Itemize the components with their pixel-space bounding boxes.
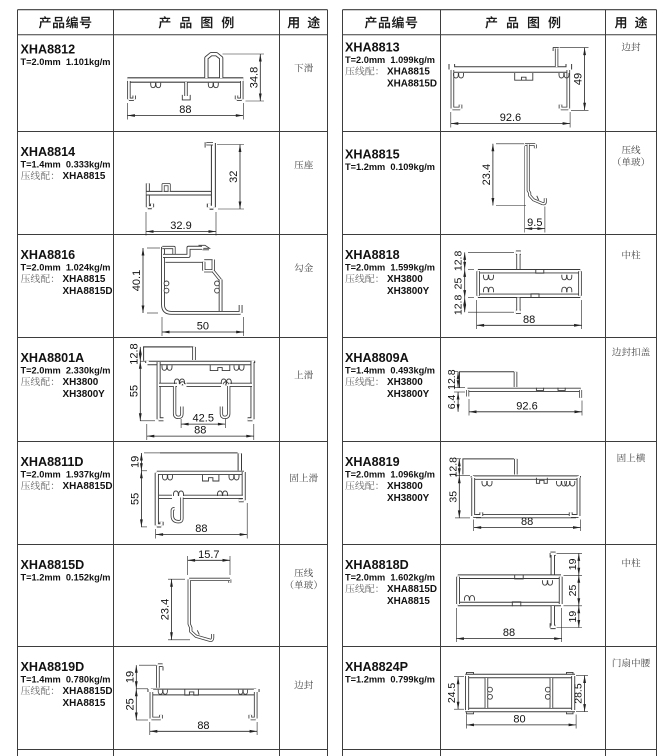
svg-text:T=2.0mm 1.024kg/m: T=2.0mm 1.024kg/m <box>21 263 111 274</box>
svg-text:23.4: 23.4 <box>481 164 493 185</box>
svg-text:XHA8813: XHA8813 <box>345 41 400 55</box>
svg-text:T=2.0mm 1.096kg/m: T=2.0mm 1.096kg/m <box>345 470 435 481</box>
svg-text:XH3800: XH3800 <box>63 377 99 388</box>
svg-text:XH3800Y: XH3800Y <box>387 286 430 297</box>
svg-text:88: 88 <box>523 314 535 326</box>
svg-text:35: 35 <box>447 491 459 503</box>
svg-text:XH3800Y: XH3800Y <box>387 493 430 504</box>
svg-text:88: 88 <box>197 720 209 732</box>
svg-text:XHA8815: XHA8815 <box>387 596 430 607</box>
svg-text:XHA8812: XHA8812 <box>21 42 76 56</box>
svg-text:28.5: 28.5 <box>573 683 585 704</box>
svg-text:32: 32 <box>228 171 240 183</box>
svg-text:40.1: 40.1 <box>131 270 143 291</box>
svg-text:88: 88 <box>179 104 191 116</box>
svg-text:XH3800: XH3800 <box>387 274 423 285</box>
svg-text:XHA8816: XHA8816 <box>21 248 76 262</box>
svg-text:XHA8815: XHA8815 <box>345 148 400 162</box>
svg-text:34.8: 34.8 <box>248 67 260 88</box>
svg-text:XHA8815: XHA8815 <box>63 274 106 285</box>
svg-text:19: 19 <box>129 456 141 468</box>
svg-text:XHA8809A: XHA8809A <box>345 351 409 365</box>
svg-text:T=1.4mm 0.333kg/m: T=1.4mm 0.333kg/m <box>21 160 111 171</box>
svg-text:92.6: 92.6 <box>516 400 537 412</box>
svg-text:T=1.2mm 0.109kg/m: T=1.2mm 0.109kg/m <box>345 162 435 173</box>
svg-text:XHA8815D: XHA8815D <box>21 558 85 572</box>
svg-text:15.7: 15.7 <box>198 549 219 561</box>
svg-text:50: 50 <box>197 321 209 333</box>
svg-text:XHA8815D: XHA8815D <box>387 584 437 595</box>
svg-text:XHA8824P: XHA8824P <box>345 660 408 674</box>
svg-text:T=2.0mm 1.101kg/m: T=2.0mm 1.101kg/m <box>21 57 111 68</box>
svg-text:XH3800Y: XH3800Y <box>63 389 106 400</box>
svg-text:T=2.0mm 1.599kg/m: T=2.0mm 1.599kg/m <box>345 263 435 274</box>
svg-text:XHA8815D: XHA8815D <box>63 481 113 492</box>
svg-text:24.5: 24.5 <box>446 683 458 704</box>
svg-text:XHA8815D: XHA8815D <box>63 686 113 697</box>
svg-text:T=1.2mm 0.799kg/m: T=1.2mm 0.799kg/m <box>345 675 435 686</box>
svg-text:XHA8815D: XHA8815D <box>63 286 113 297</box>
svg-text:XHA8801A: XHA8801A <box>21 351 85 365</box>
svg-text:49: 49 <box>573 73 585 85</box>
svg-text:XHA8819: XHA8819 <box>345 455 400 469</box>
svg-text:XHA8815D: XHA8815D <box>387 78 437 89</box>
svg-text:55: 55 <box>128 385 140 397</box>
svg-text:12.8: 12.8 <box>446 369 458 390</box>
svg-text:55: 55 <box>129 493 141 505</box>
svg-text:XHA8815: XHA8815 <box>63 171 106 182</box>
svg-text:23.4: 23.4 <box>160 599 172 620</box>
svg-text:19: 19 <box>124 671 136 683</box>
svg-text:12.8: 12.8 <box>128 343 140 364</box>
svg-text:T=2.0mm 1.099kg/m: T=2.0mm 1.099kg/m <box>345 55 435 66</box>
svg-text:32.9: 32.9 <box>170 220 191 232</box>
svg-text:80: 80 <box>513 713 525 725</box>
svg-text:88: 88 <box>195 523 207 535</box>
svg-text:XHA8814: XHA8814 <box>21 145 76 159</box>
svg-text:42.5: 42.5 <box>193 413 214 425</box>
svg-text:25: 25 <box>453 278 465 290</box>
svg-text:25: 25 <box>567 585 579 597</box>
svg-text:6.4: 6.4 <box>446 394 458 409</box>
svg-text:T=1.4mm 0.780kg/m: T=1.4mm 0.780kg/m <box>21 675 111 686</box>
svg-text:T=1.4mm 0.493kg/m: T=1.4mm 0.493kg/m <box>345 366 435 377</box>
svg-text:XHA8819D: XHA8819D <box>21 660 85 674</box>
svg-text:XHA8811D: XHA8811D <box>21 455 84 469</box>
svg-text:T=2.0mm 1.602kg/m: T=2.0mm 1.602kg/m <box>345 573 435 584</box>
svg-text:88: 88 <box>194 425 206 437</box>
svg-text:XHA8815: XHA8815 <box>387 67 430 78</box>
svg-text:12.8: 12.8 <box>447 457 459 478</box>
svg-text:19: 19 <box>567 611 579 623</box>
svg-text:T=2.0mm 1.937kg/m: T=2.0mm 1.937kg/m <box>21 470 111 481</box>
svg-text:25: 25 <box>124 698 136 710</box>
svg-text:XH3800Y: XH3800Y <box>387 389 430 400</box>
svg-text:T=2.0mm 2.330kg/m: T=2.0mm 2.330kg/m <box>21 366 111 377</box>
svg-text:19: 19 <box>567 558 579 570</box>
svg-text:XHA8815: XHA8815 <box>63 698 106 709</box>
svg-text:T=1.2mm 0.152kg/m: T=1.2mm 0.152kg/m <box>21 573 111 584</box>
svg-text:88: 88 <box>521 516 533 528</box>
svg-text:XHA8818D: XHA8818D <box>345 558 409 572</box>
svg-text:9.5: 9.5 <box>527 217 542 229</box>
svg-text:92.6: 92.6 <box>500 112 521 124</box>
svg-text:XHA8818: XHA8818 <box>345 248 400 262</box>
svg-text:XH3800: XH3800 <box>387 481 423 492</box>
svg-text:XH3800: XH3800 <box>387 377 423 388</box>
svg-text:12.8: 12.8 <box>453 251 465 272</box>
svg-text:12.8: 12.8 <box>453 295 465 316</box>
svg-text:88: 88 <box>503 627 515 639</box>
